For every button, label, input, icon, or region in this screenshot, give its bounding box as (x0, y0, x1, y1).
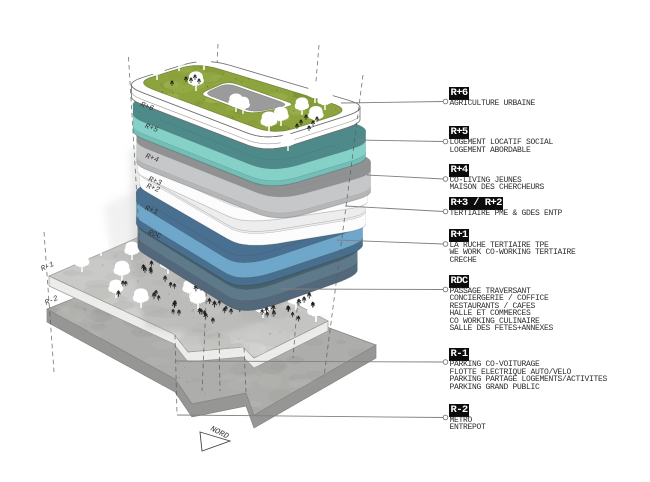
svg-text:R-1: R-1 (40, 261, 56, 274)
